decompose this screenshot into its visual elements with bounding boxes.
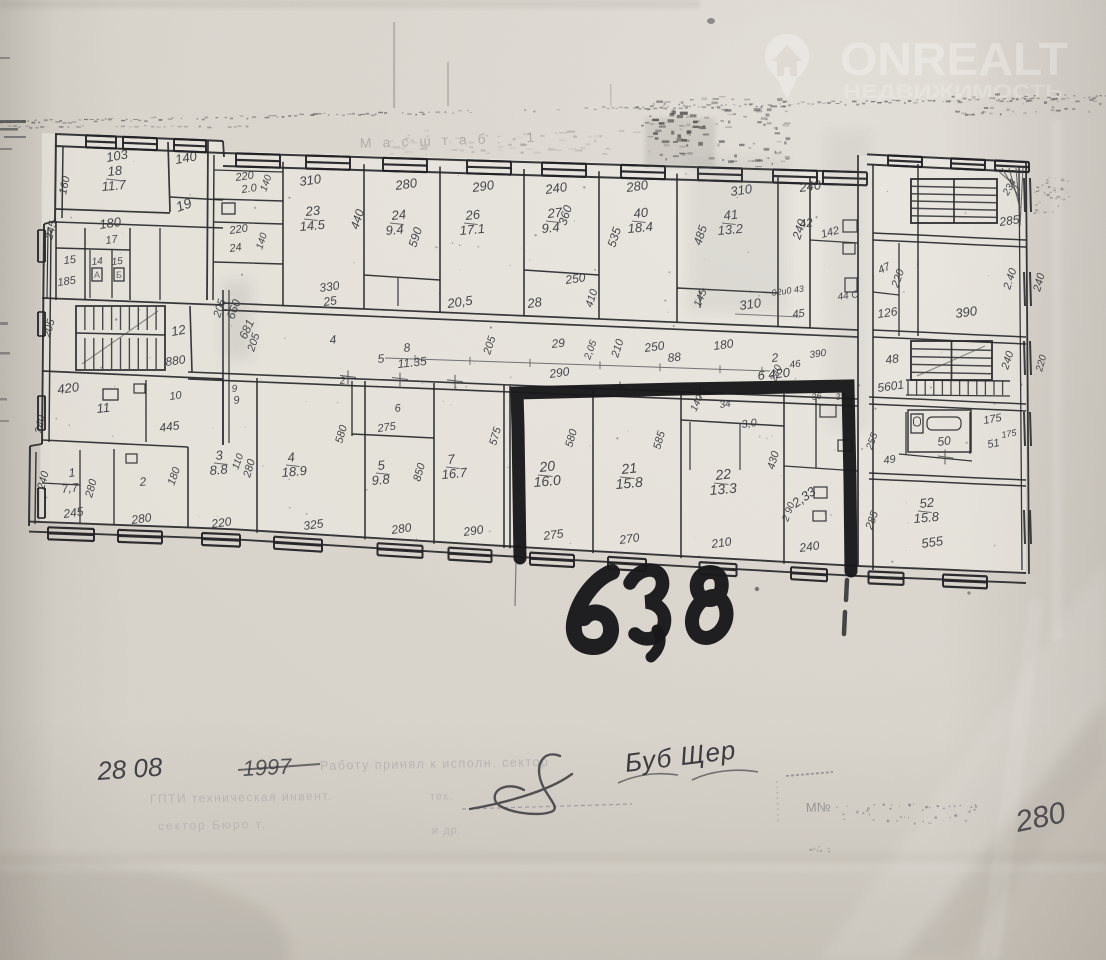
svg-text:Б: Б [116,270,122,280]
svg-text:390: 390 [954,303,978,321]
svg-text:46: 46 [789,358,802,371]
svg-text:11.7: 11.7 [101,177,127,194]
svg-text:18.4: 18.4 [627,219,654,236]
svg-text:50: 50 [936,433,951,449]
svg-text:275: 275 [541,526,564,543]
svg-text:и др.: и др. [432,824,462,837]
svg-text:27: 27 [546,204,564,221]
svg-text:15: 15 [111,256,124,268]
svg-text:180: 180 [98,214,122,232]
svg-text:16.7: 16.7 [441,465,468,482]
svg-text:15.8: 15.8 [913,509,940,526]
svg-text:285: 285 [997,212,1020,229]
svg-text:24: 24 [390,207,407,224]
svg-text:9.4: 9.4 [541,219,560,236]
svg-text:180: 180 [712,336,734,353]
svg-text:9.4: 9.4 [385,221,404,238]
svg-text:880: 880 [164,352,186,369]
svg-text:14.5: 14.5 [299,217,326,234]
svg-text:49: 49 [883,453,897,467]
svg-text:М№: М№ [806,799,831,815]
svg-text:250: 250 [642,338,665,355]
svg-text:240: 240 [797,538,820,555]
svg-text:250: 250 [563,270,586,287]
svg-text:42: 42 [798,215,813,231]
svg-text:34: 34 [719,398,732,411]
svg-text:48: 48 [884,351,899,367]
svg-text:290: 290 [461,522,484,539]
svg-text:325: 325 [302,516,324,533]
svg-text:11: 11 [96,400,111,416]
svg-text:24: 24 [228,241,243,255]
svg-text:280: 280 [129,510,152,527]
svg-text:9.8: 9.8 [371,471,391,488]
svg-text:126: 126 [876,304,898,321]
svg-text:ONREALT: ONREALT [840,33,1068,85]
svg-text:88: 88 [667,350,682,365]
svg-text:25: 25 [321,293,337,309]
svg-text:330: 330 [318,278,340,295]
svg-text:17.1: 17.1 [459,221,486,238]
svg-text:13.3: 13.3 [709,480,738,498]
svg-text:А: А [94,270,100,280]
svg-text:280: 280 [389,520,412,537]
svg-text:18.9: 18.9 [281,463,308,480]
svg-text:270: 270 [617,530,640,547]
svg-text:15: 15 [63,254,77,267]
svg-text:420: 420 [56,379,80,397]
svg-text:2.0: 2.0 [240,182,259,196]
svg-text:290: 290 [547,364,570,381]
svg-text:310: 310 [298,171,322,189]
svg-text:28 08: 28 08 [95,751,164,786]
svg-text:3,0: 3,0 [741,417,759,431]
svg-text:15.8: 15.8 [615,474,644,492]
svg-text:51: 51 [986,437,1000,451]
svg-text:555: 555 [920,533,944,551]
svg-text:245: 245 [61,504,84,521]
svg-text:14: 14 [91,256,104,268]
svg-text:28: 28 [525,294,543,311]
svg-text:210: 210 [709,534,732,551]
svg-text:8.8: 8.8 [209,461,229,478]
svg-text:445: 445 [158,418,180,435]
svg-text:7,7: 7,7 [61,480,80,496]
svg-text:29: 29 [550,336,566,351]
svg-text:16.0: 16.0 [533,472,562,490]
svg-text:тех.: тех. [430,791,454,803]
svg-text:сектор Бюро т.: сектор Бюро т. [158,817,267,833]
svg-text:220: 220 [209,514,232,531]
